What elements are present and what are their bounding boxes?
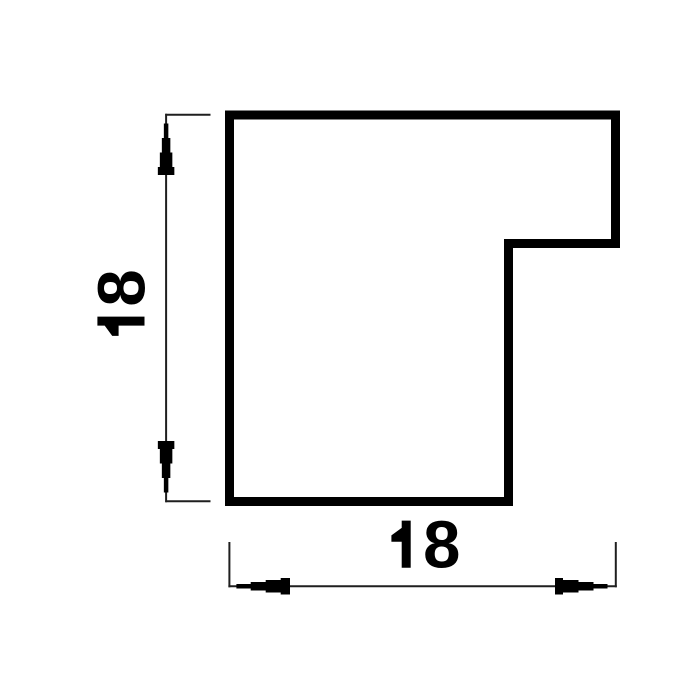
svg-text:8: 8 bbox=[423, 508, 460, 583]
svg-text:8: 8 bbox=[85, 269, 160, 306]
